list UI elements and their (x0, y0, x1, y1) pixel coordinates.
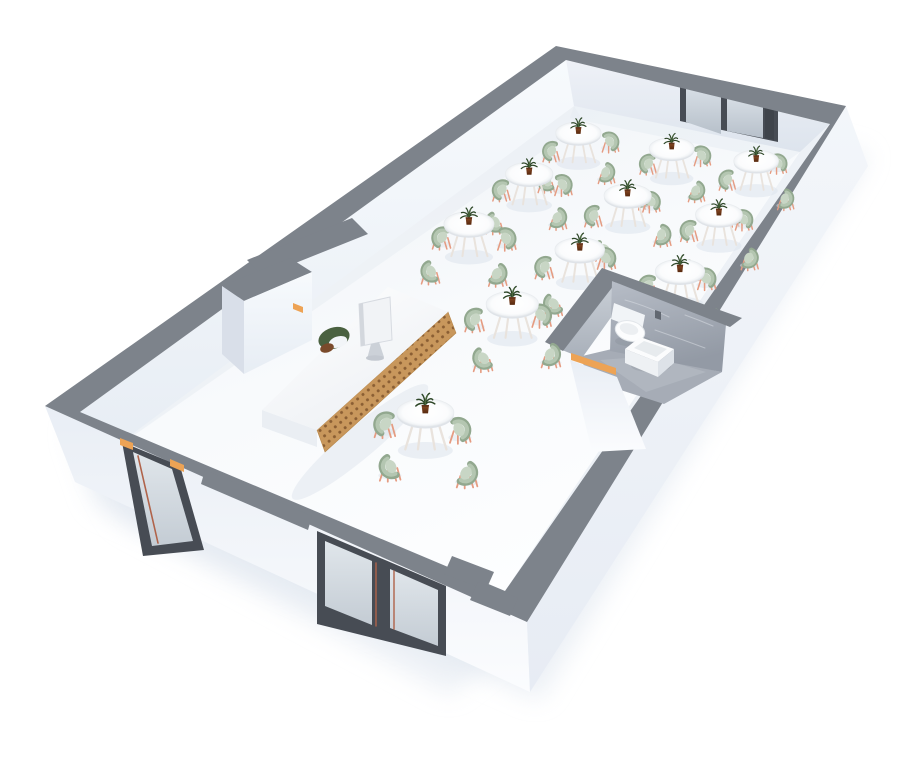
plant-pot-rim (625, 189, 631, 190)
plant-pot-rim (716, 209, 722, 210)
plant-pot-rim (509, 297, 516, 299)
plant-pot-rim (669, 143, 675, 144)
architecture-base (45, 46, 870, 700)
plant-pot-rim (466, 217, 472, 219)
floorplan-render (0, 0, 900, 764)
plant-pot-rim (577, 243, 583, 245)
plant-pot-rim (422, 405, 429, 407)
plant-pot-rim (575, 127, 581, 128)
plant-pot-rim (753, 155, 759, 156)
floorplan-svg (0, 0, 900, 764)
plant-pot-rim (526, 168, 532, 169)
plant-pot-rim (677, 265, 683, 267)
monitor-base (366, 355, 384, 361)
